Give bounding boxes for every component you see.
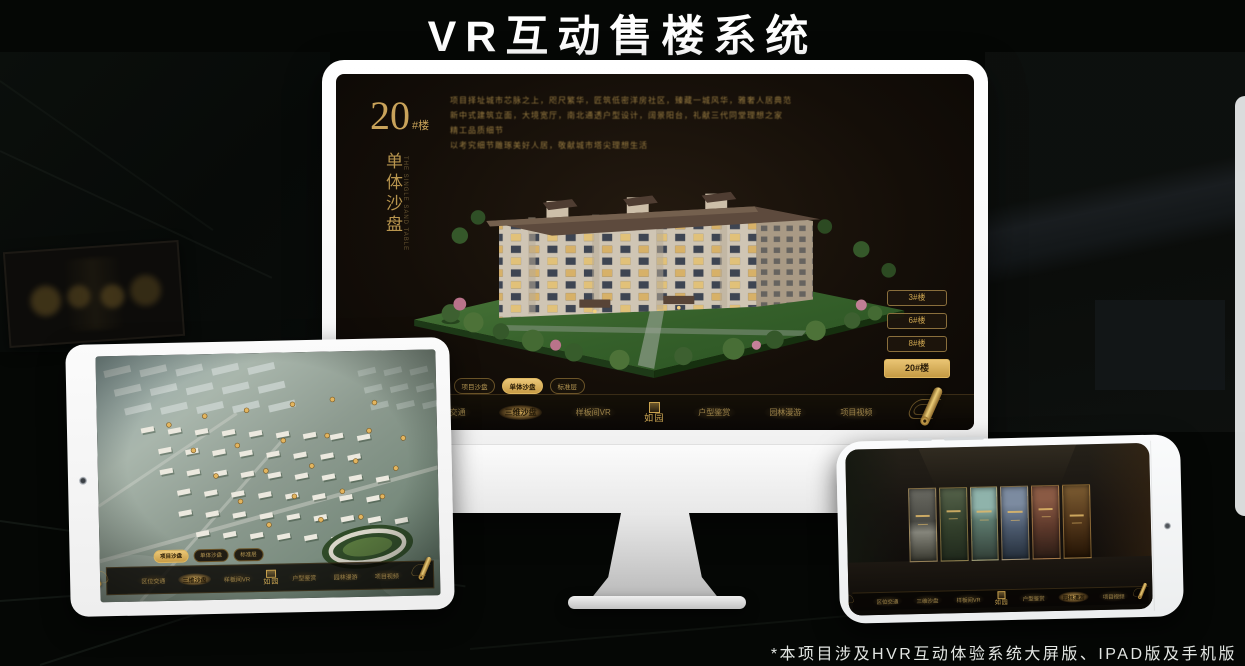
phone-camera-icon [1164, 522, 1171, 529]
gallery-panel[interactable] [1001, 486, 1030, 561]
nav-item-3d-sandbox[interactable]: 三维沙盘 [178, 573, 211, 586]
scroll-icon[interactable] [1135, 582, 1150, 602]
nav-item-project-video[interactable]: 项目视频 [835, 405, 878, 420]
background-aerial-photo [985, 52, 1245, 432]
footnote: *本项目涉及HVR互动体验系统大屏版、IPAD版及手机版 [771, 640, 1237, 664]
brand-name: 如园 [995, 600, 1009, 606]
scroll-icon[interactable] [914, 385, 948, 430]
nav-item-project-video[interactable]: 项目视频 [1099, 590, 1129, 601]
nav-item-garden-tour[interactable]: 园林漫游 [764, 405, 807, 420]
scroll-icon[interactable] [845, 589, 852, 609]
nav-item-location[interactable]: 区位交通 [872, 596, 902, 607]
page-title: VR互动售楼系统 [0, 2, 1245, 64]
background-device-edge [1235, 96, 1245, 516]
monitor-base [568, 596, 746, 609]
nav-item-3d-sandbox[interactable]: 三维沙盘 [499, 405, 542, 420]
nav-item-showroom-vr[interactable]: 样板间VR [570, 405, 616, 420]
floor-button-8[interactable]: 8#楼 [887, 336, 947, 352]
gallery-panel[interactable] [970, 486, 999, 561]
nav-item-garden-tour[interactable]: 园林漫游 [329, 570, 362, 583]
tab-standard-floor[interactable]: 标准层 [550, 378, 585, 394]
brand-logo: 如园 [644, 402, 665, 422]
description-line: 项目择址城市芯脉之上，咫尺繁华，匠筑低密洋房社区，臻藏一城风华，雅奢人居典范 [450, 94, 880, 108]
phone-power-button [944, 437, 984, 441]
nav-item-3d-sandbox[interactable]: 三维沙盘 [912, 595, 942, 606]
nav-item-showroom-vr[interactable]: 样板间VR [952, 594, 984, 605]
tablet-screen: 项目沙盘 单体沙盘 标准层 区位交通 三维沙盘 样板间VR 如园 户型鉴赏 园林… [95, 349, 440, 602]
stage: VR互动售楼系统 20#楼 单体沙盘 THE SINGLE SAND TABLE… [0, 0, 1245, 666]
plaque-calligraphy [16, 253, 173, 335]
brand-logo: 如园 [263, 569, 279, 586]
nav-item-location[interactable]: 区位交通 [137, 574, 170, 587]
tab-single-sandbox[interactable]: 单体沙盘 [502, 378, 543, 394]
monitor-stand [590, 512, 720, 600]
tablet-sandbox-tabs: 项目沙盘 单体沙盘 标准层 [154, 548, 264, 563]
background-building [1095, 300, 1225, 390]
gallery-panel[interactable] [939, 487, 968, 562]
background-road-line [0, 80, 214, 231]
gallery-panels [908, 484, 1092, 562]
tablet-camera-icon [79, 477, 87, 485]
gallery-panel[interactable] [1031, 485, 1060, 560]
tablet-device: 项目沙盘 单体沙盘 标准层 区位交通 三维沙盘 样板间VR 如园 户型鉴赏 园林… [65, 337, 455, 617]
phone-volume-button [908, 438, 932, 442]
brand-logo: 如园 [995, 591, 1009, 606]
gallery-panel[interactable] [1062, 484, 1091, 559]
scroll-icon[interactable] [95, 562, 105, 590]
tab-project-sandbox[interactable]: 项目沙盘 [454, 378, 495, 394]
floor-button-6[interactable]: 6#楼 [887, 313, 947, 329]
nav-item-garden-tour[interactable]: 园林漫游 [1059, 591, 1089, 602]
ruyuan-seal-icon [649, 402, 661, 412]
floor-button-3[interactable]: 3#楼 [887, 290, 947, 306]
description-line: 新中式建筑立面，大境宽厅，南北通透户型设计，阔景阳台，礼献三代同堂理想之家 [450, 109, 880, 123]
background-plaque [3, 240, 185, 348]
ruyuan-seal-icon [997, 591, 1006, 599]
nav-item-floorplans[interactable]: 户型鉴赏 [1019, 592, 1049, 603]
floor-selector: 3#楼 6#楼 8#楼 20#楼 [884, 290, 950, 378]
nav-item-showroom-vr[interactable]: 样板间VR [219, 572, 254, 585]
sandbox-tabs: 项目沙盘 单体沙盘 标准层 [454, 378, 585, 394]
background-road-line [0, 150, 272, 279]
phone-device: 区位交通 三维沙盘 样板间VR 如园 户型鉴赏 园林漫游 项目视频 [836, 434, 1184, 624]
tab-standard-floor[interactable]: 标准层 [234, 548, 264, 562]
brand-name: 如园 [263, 578, 279, 586]
nav-item-floorplans[interactable]: 户型鉴赏 [288, 571, 321, 584]
brand-name: 如园 [644, 413, 665, 423]
background-map [0, 52, 330, 352]
gallery-panel[interactable] [908, 488, 937, 563]
scroll-icon[interactable] [414, 555, 435, 583]
tab-project-sandbox[interactable]: 项目沙盘 [154, 549, 189, 563]
building-3d-model[interactable] [364, 126, 948, 400]
nav-item-project-video[interactable]: 项目视频 [371, 569, 404, 582]
nav-item-floorplans[interactable]: 户型鉴赏 [693, 405, 736, 420]
tab-single-sandbox[interactable]: 单体沙盘 [194, 549, 229, 563]
phone-screen: 区位交通 三维沙盘 样板间VR 如园 户型鉴赏 园林漫游 项目视频 [845, 443, 1153, 616]
floor-button-20[interactable]: 20#楼 [884, 359, 950, 378]
